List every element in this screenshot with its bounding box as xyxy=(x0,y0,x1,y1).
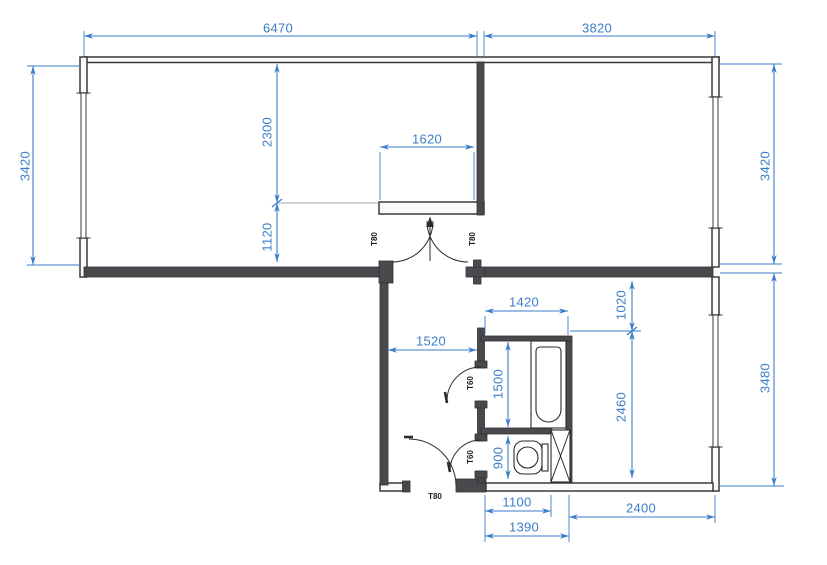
pier-left-top xyxy=(80,57,87,93)
dim-alcove-width: 1620 xyxy=(412,131,442,146)
wall-bath-wc-divider xyxy=(481,428,552,434)
dim-kitchen-upper: 1020 xyxy=(613,290,628,320)
dim-living-lower: 1120 xyxy=(259,222,274,251)
dim-top-left-width: 6470 xyxy=(263,20,293,35)
wall-top-exterior xyxy=(84,57,719,63)
wall-partition-top-rooms xyxy=(477,62,484,215)
wall-junction-plus-bar xyxy=(466,267,485,277)
dim-left-height: 3420 xyxy=(17,151,32,181)
dim-kitchen-lower: 2460 xyxy=(613,392,628,422)
dim-top-right-width: 3820 xyxy=(582,20,612,35)
extension-lines xyxy=(27,31,784,542)
dimension-labels: 6470 3820 3420 2300 1120 1620 3420 3480 … xyxy=(17,20,772,534)
dim-bathroom-depth: 1500 xyxy=(490,369,505,399)
window-bedroom xyxy=(713,97,718,228)
wall-mid-right xyxy=(485,267,713,277)
dim-living-upper: 2300 xyxy=(259,117,274,147)
wall-junction-t-block xyxy=(379,261,393,283)
door-label-entrance: T80 xyxy=(428,492,442,501)
door-label-bathroom: T60 xyxy=(466,376,475,390)
dim-right-lower-height: 3480 xyxy=(757,363,772,393)
wc-door-leaf xyxy=(448,462,450,472)
dim-wc-depth: 900 xyxy=(490,447,505,470)
wall-bath-top xyxy=(481,336,572,341)
double-door-right-swing-arc xyxy=(427,221,468,262)
lintel-double-door xyxy=(379,202,484,214)
fixtures xyxy=(514,341,570,482)
pier-right-mid-lower xyxy=(712,277,719,315)
door-label-double-left: T80 xyxy=(370,232,379,246)
walls xyxy=(80,57,719,492)
dim-bathroom-width: 1420 xyxy=(509,294,539,309)
wall-hallway-left xyxy=(380,283,388,485)
wall-bottom-kitchen xyxy=(486,483,713,491)
wall-mid-left xyxy=(84,267,379,277)
door-label-wc: T60 xyxy=(466,450,475,464)
double-door-left-swing-arc xyxy=(392,221,433,262)
pier-right-top xyxy=(712,57,719,97)
dim-kitchen-width: 2400 xyxy=(626,500,656,515)
jamb-bath-door-bottom xyxy=(475,401,487,408)
bathtub-basin xyxy=(536,347,561,422)
dim-bath-block-width: 1390 xyxy=(509,519,539,534)
dim-hallway-width: 1520 xyxy=(416,333,446,348)
dim-right-upper-height: 3420 xyxy=(757,151,772,181)
jamb-entrance-left xyxy=(403,481,411,492)
pier-right-mid-upper xyxy=(712,228,719,267)
toilet-cistern xyxy=(542,444,548,471)
bathroom-door-swing-arc xyxy=(447,367,481,401)
window-living-room xyxy=(81,93,86,238)
floor-plan-canvas: 6470 3820 3420 2300 1120 1620 3420 3480 … xyxy=(0,0,827,565)
dim-wc-width: 1100 xyxy=(502,494,531,509)
dimension-lines xyxy=(33,36,774,536)
doors xyxy=(392,217,481,487)
floor-plan-drawing: 6470 3820 3420 2300 1120 1620 3420 3480 … xyxy=(0,0,827,565)
toilet-seat xyxy=(517,447,538,468)
door-label-double-right: T80 xyxy=(468,232,477,246)
bathroom-door-leaf xyxy=(445,392,447,403)
window-kitchen xyxy=(713,315,718,447)
jamb-wc-door-bottom xyxy=(475,471,487,478)
